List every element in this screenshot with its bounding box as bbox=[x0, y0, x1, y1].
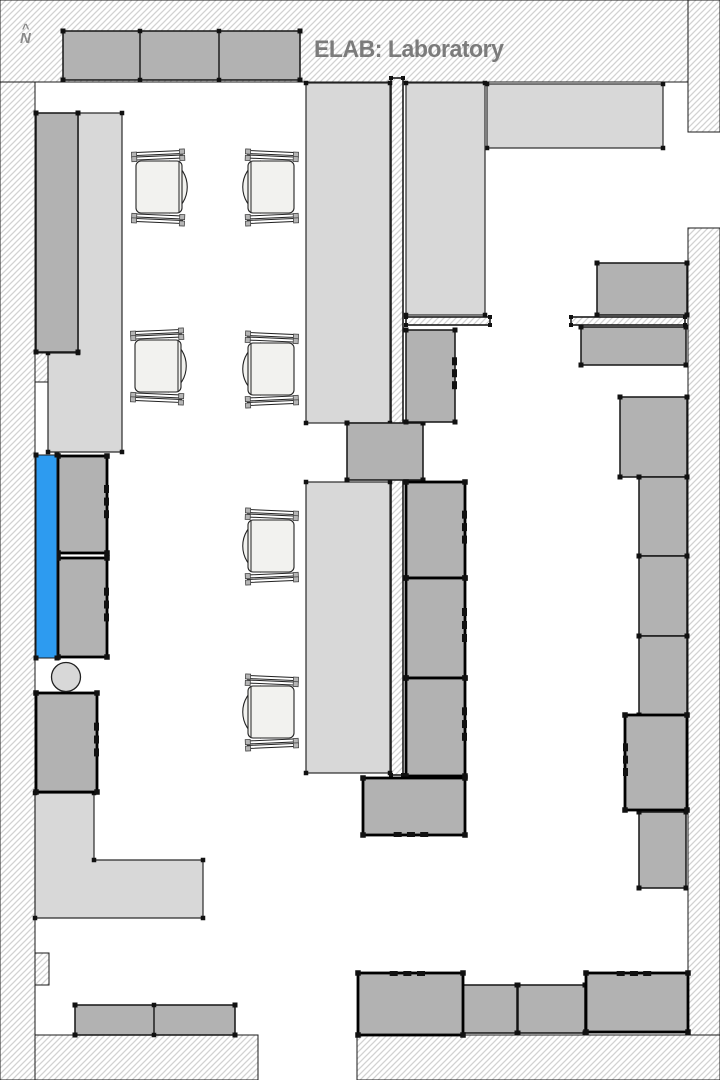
edge-tick bbox=[104, 485, 109, 493]
bench-center-upper[interactable] bbox=[306, 83, 390, 423]
corner-dot bbox=[120, 111, 125, 116]
ledge-right bbox=[571, 317, 685, 325]
equip-bottom-row-1[interactable] bbox=[358, 973, 463, 1035]
cabinet-center-mid[interactable] bbox=[347, 423, 423, 480]
edge-tick bbox=[94, 723, 99, 731]
corner-dot bbox=[595, 313, 600, 318]
chair-seat bbox=[248, 686, 294, 738]
corner-dot bbox=[61, 29, 66, 34]
corner-dot bbox=[360, 775, 366, 781]
corner-dot bbox=[34, 656, 39, 661]
equip-center-1[interactable] bbox=[406, 482, 465, 578]
edge-tick bbox=[623, 743, 628, 751]
corner-dot bbox=[462, 775, 468, 781]
chair-seat bbox=[248, 161, 294, 213]
equip-center-3[interactable] bbox=[406, 678, 465, 776]
cabinet-right-3[interactable] bbox=[620, 397, 687, 477]
corner-dot bbox=[583, 1029, 589, 1035]
corner-dot bbox=[462, 675, 468, 681]
corner-dot bbox=[388, 81, 393, 86]
corner-dot bbox=[637, 554, 642, 559]
corner-dot bbox=[92, 858, 97, 863]
corner-dot bbox=[685, 395, 690, 400]
edge-tick bbox=[390, 971, 398, 976]
edge-tick bbox=[452, 381, 457, 389]
edge-tick bbox=[462, 707, 467, 715]
corner-dot bbox=[685, 1029, 691, 1035]
equip-center-bottom[interactable] bbox=[363, 778, 465, 835]
room-title: ELAB: Laboratory bbox=[314, 36, 503, 64]
equip-left-1[interactable] bbox=[58, 456, 107, 553]
edge-tick bbox=[420, 832, 428, 837]
corner-dot bbox=[201, 916, 206, 921]
corner-dot bbox=[453, 328, 458, 333]
edge-tick bbox=[462, 621, 467, 629]
corner-dot bbox=[73, 1003, 78, 1008]
edge-tick bbox=[462, 523, 467, 531]
floorplan-canvas: ELAB: Laboratory ^N bbox=[0, 0, 720, 1080]
corner-dot bbox=[403, 675, 409, 681]
bench-center-east[interactable] bbox=[406, 83, 485, 315]
cabinet-right-low[interactable] bbox=[639, 812, 686, 888]
chair-seat bbox=[136, 161, 182, 213]
corner-dot bbox=[201, 858, 206, 863]
edge-tick bbox=[94, 748, 99, 756]
edge-tick bbox=[417, 971, 425, 976]
corner-dot bbox=[55, 453, 60, 458]
corner-dot bbox=[637, 634, 642, 639]
corner-dot bbox=[152, 1033, 157, 1038]
wall-right bbox=[688, 228, 720, 1080]
edge-tick bbox=[462, 720, 467, 728]
corner-dot bbox=[233, 1003, 238, 1008]
edge-tick bbox=[452, 357, 457, 365]
corner-dot bbox=[34, 111, 39, 116]
corner-dot bbox=[345, 421, 350, 426]
chair-seat bbox=[248, 520, 294, 572]
bench-center-lower[interactable] bbox=[306, 482, 390, 773]
corner-dot bbox=[516, 1031, 521, 1036]
wall-notch-left bbox=[35, 953, 49, 985]
corner-dot bbox=[304, 480, 309, 485]
cabinet-top-row[interactable] bbox=[63, 31, 300, 80]
corner-dot bbox=[233, 1033, 238, 1038]
corner-dot bbox=[622, 712, 628, 718]
corner-dot bbox=[304, 81, 309, 86]
cabinet-bottom-left[interactable] bbox=[75, 1005, 235, 1035]
edge-tick bbox=[617, 971, 625, 976]
edge-tick bbox=[104, 510, 109, 518]
corner-dot bbox=[355, 1032, 361, 1038]
cabinet-right-col-3[interactable] bbox=[639, 636, 687, 715]
corner-dot bbox=[483, 313, 488, 318]
cabinet-center-upper[interactable] bbox=[406, 330, 455, 422]
wall-top-right-stub bbox=[688, 0, 720, 132]
corner-dot bbox=[34, 453, 39, 458]
equip-right[interactable] bbox=[625, 715, 687, 810]
corner-dot bbox=[622, 807, 628, 813]
selected-bench-left[interactable] bbox=[36, 455, 57, 658]
corner-dot bbox=[661, 82, 666, 87]
corner-dot bbox=[516, 983, 521, 988]
corner-dot bbox=[217, 78, 222, 83]
edge-tick bbox=[643, 971, 651, 976]
corner-dot bbox=[488, 323, 492, 327]
corner-dot bbox=[33, 690, 39, 696]
corner-dot bbox=[403, 479, 409, 485]
corner-dot bbox=[33, 789, 39, 795]
corner-dot bbox=[579, 325, 584, 330]
equip-bottom-row-2[interactable] bbox=[586, 973, 688, 1032]
corner-dot bbox=[298, 78, 303, 83]
chair-seat bbox=[135, 340, 181, 392]
corner-dot bbox=[684, 807, 690, 813]
corner-dot bbox=[403, 575, 409, 581]
cabinet-right-col-1[interactable] bbox=[639, 477, 687, 556]
edge-tick bbox=[462, 634, 467, 642]
corner-dot bbox=[61, 78, 66, 83]
corner-dot bbox=[404, 420, 409, 425]
corner-dot bbox=[684, 712, 690, 718]
cabinet-right-1[interactable] bbox=[597, 263, 687, 315]
corner-dot bbox=[33, 916, 38, 921]
corner-dot bbox=[462, 832, 468, 838]
corner-dot bbox=[685, 313, 690, 318]
edge-tick bbox=[630, 971, 638, 976]
corner-dot bbox=[404, 323, 408, 327]
corner-dot bbox=[583, 970, 589, 976]
equip-left-2[interactable] bbox=[58, 558, 107, 657]
edge-tick bbox=[623, 756, 628, 764]
cabinet-bottom-1[interactable] bbox=[460, 985, 517, 1033]
corner-dot bbox=[73, 1033, 78, 1038]
corner-dot bbox=[460, 1032, 466, 1038]
corner-dot bbox=[76, 111, 81, 116]
corner-dot bbox=[685, 970, 691, 976]
corner-dot bbox=[34, 350, 39, 355]
corner-dot bbox=[138, 78, 143, 83]
corner-dot bbox=[401, 76, 405, 80]
corner-dot bbox=[94, 690, 100, 696]
corner-dot bbox=[304, 771, 309, 776]
corner-dot bbox=[345, 478, 350, 483]
north-label: N bbox=[20, 30, 31, 47]
edge-tick bbox=[407, 832, 415, 837]
corner-dot bbox=[453, 420, 458, 425]
corner-dot bbox=[618, 395, 623, 400]
edge-tick bbox=[462, 511, 467, 519]
corner-dot bbox=[685, 475, 690, 480]
corner-dot bbox=[55, 656, 60, 661]
cabinet-left-tall[interactable] bbox=[36, 113, 78, 352]
corner-dot bbox=[488, 315, 492, 319]
edge-tick bbox=[452, 369, 457, 377]
bench-top-right[interactable] bbox=[487, 84, 663, 148]
corner-dot bbox=[462, 575, 468, 581]
corner-dot bbox=[389, 76, 393, 80]
corner-dot bbox=[152, 1003, 157, 1008]
edge-tick bbox=[394, 832, 402, 837]
edge-tick bbox=[462, 733, 467, 741]
corner-dot bbox=[661, 146, 666, 151]
corner-dot bbox=[569, 315, 573, 319]
edge-tick bbox=[462, 608, 467, 616]
cabinet-right-2[interactable] bbox=[581, 327, 686, 365]
corner-dot bbox=[483, 81, 488, 86]
corner-dot bbox=[637, 475, 642, 480]
corner-dot bbox=[304, 421, 309, 426]
wall-left bbox=[0, 0, 35, 1080]
corner-dot bbox=[685, 634, 690, 639]
corner-dot bbox=[462, 479, 468, 485]
corner-dot bbox=[404, 328, 409, 333]
corner-dot bbox=[637, 886, 642, 891]
edge-tick bbox=[94, 736, 99, 744]
equip-left-3[interactable] bbox=[36, 693, 97, 792]
wall-bottom-left bbox=[35, 1035, 258, 1080]
corner-dot bbox=[360, 832, 366, 838]
edge-tick bbox=[623, 768, 628, 776]
edge-tick bbox=[104, 498, 109, 506]
corner-dot bbox=[684, 363, 689, 368]
corner-dot bbox=[685, 554, 690, 559]
north-arrow-icon: ^N bbox=[20, 24, 31, 44]
corner-dot bbox=[138, 29, 143, 34]
stool-circle[interactable] bbox=[52, 663, 81, 692]
edge-tick bbox=[104, 613, 109, 621]
corner-dot bbox=[94, 789, 100, 795]
edge-tick bbox=[104, 588, 109, 596]
floorplan-svg bbox=[0, 0, 720, 1080]
corner-dot bbox=[404, 313, 409, 318]
corner-dot bbox=[104, 453, 110, 459]
corner-dot bbox=[104, 654, 110, 660]
corner-dot bbox=[685, 261, 690, 266]
corner-dot bbox=[298, 29, 303, 34]
corner-dot bbox=[684, 325, 689, 330]
corner-dot bbox=[217, 29, 222, 34]
corner-dot bbox=[404, 81, 409, 86]
corner-dot bbox=[569, 323, 573, 327]
corner-dot bbox=[120, 450, 125, 455]
corner-dot bbox=[684, 886, 689, 891]
corner-dot bbox=[355, 970, 361, 976]
cabinet-bottom-2[interactable] bbox=[518, 985, 585, 1033]
corner-dot bbox=[46, 450, 51, 455]
wall-bottom-right bbox=[357, 1035, 720, 1080]
chair-seat bbox=[248, 343, 294, 395]
cabinet-right-col-2[interactable] bbox=[639, 556, 687, 636]
corner-dot bbox=[104, 550, 110, 556]
corner-dot bbox=[618, 475, 623, 480]
edge-tick bbox=[104, 601, 109, 609]
ledge-center bbox=[406, 317, 490, 325]
corner-dot bbox=[76, 350, 81, 355]
edge-tick bbox=[462, 536, 467, 544]
corner-dot bbox=[595, 261, 600, 266]
corner-dot bbox=[104, 555, 110, 561]
corner-dot bbox=[388, 771, 393, 776]
equip-center-2[interactable] bbox=[406, 578, 465, 678]
edge-tick bbox=[403, 971, 411, 976]
corner-dot bbox=[460, 970, 466, 976]
wall-pilaster-left bbox=[35, 353, 48, 382]
corner-dot bbox=[579, 363, 584, 368]
